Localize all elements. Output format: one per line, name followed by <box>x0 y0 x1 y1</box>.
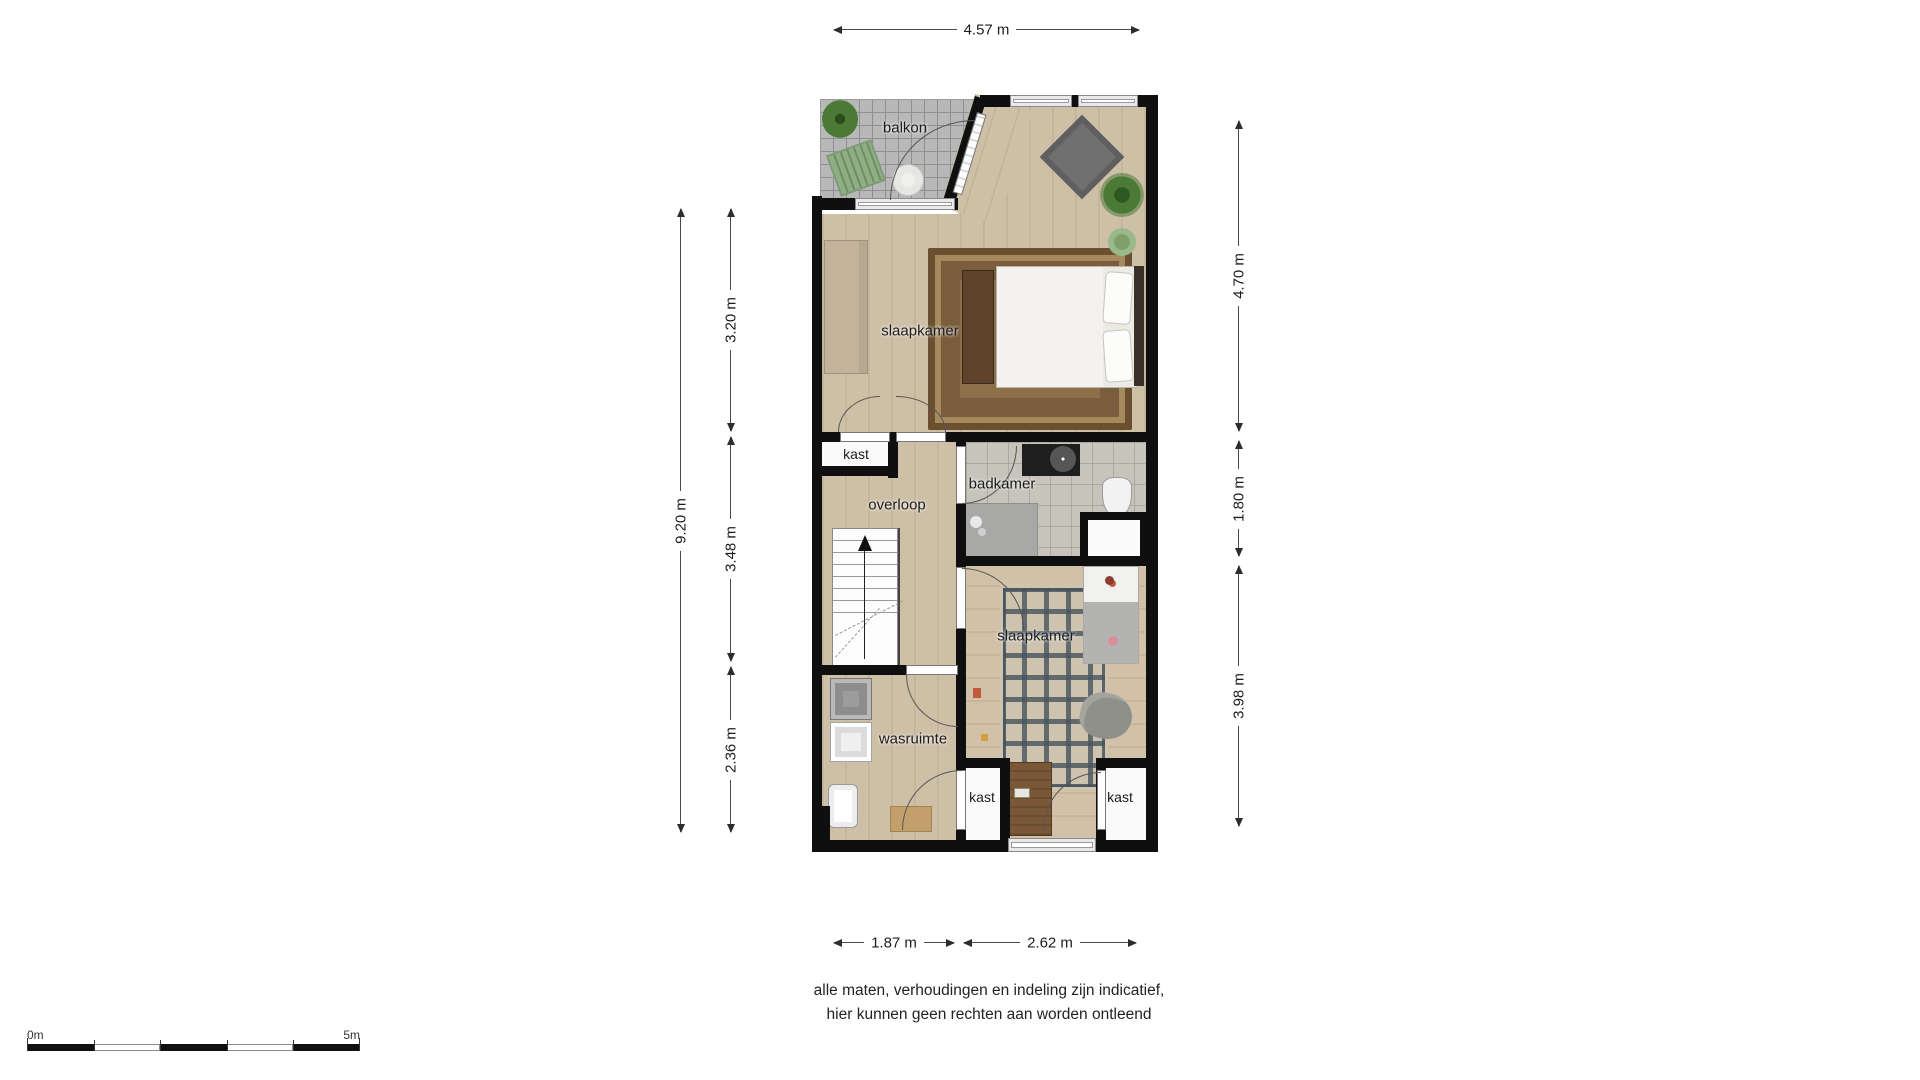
shaft <box>1088 520 1140 558</box>
staircase <box>832 528 898 668</box>
wardrobe <box>824 240 868 374</box>
wasruimte-label: wasruimte <box>879 731 947 748</box>
dimension-top-width: 4.57 m <box>833 22 1140 38</box>
disclaimer-line-1: alle maten, verhoudingen en indeling zij… <box>639 979 1339 1003</box>
window-top-left <box>1010 95 1072 107</box>
laundry-sink-icon <box>828 784 858 828</box>
single-bed-blanket <box>1084 602 1138 663</box>
desk-item-icon <box>1014 788 1030 798</box>
scale-bar: 0m 5m <box>27 1028 360 1056</box>
stair-winder-line <box>835 608 880 658</box>
kast-bottom-left-label: kast <box>969 789 995 805</box>
dimension-bottom-left-label: 1.87 m <box>864 935 924 952</box>
scale-bar-segment <box>227 1044 293 1051</box>
wall-right <box>1146 95 1158 852</box>
scale-bar-tick <box>160 1040 161 1051</box>
slaapkamer-bottom-label: slaapkamer <box>997 628 1075 645</box>
bed-bench <box>962 270 994 384</box>
dimension-left-segment-bottom-label: 2.36 m <box>723 720 740 780</box>
wall-bottom <box>812 840 1158 852</box>
bed-pillow <box>1102 329 1134 383</box>
dimension-left-total-label: 9.20 m <box>673 491 690 551</box>
dimension-right-segment-middle-label: 1.80 m <box>1231 469 1248 529</box>
kast-top-door <box>840 432 890 442</box>
dimension-left-segment-top: 3.20 m <box>723 208 739 432</box>
scale-bar-end-label: 5m <box>343 1028 360 1042</box>
scale-bar-segment <box>94 1044 160 1051</box>
dimension-right-segment-top: 4.70 m <box>1231 120 1247 432</box>
dimension-left-segment-bottom: 2.36 m <box>723 666 739 833</box>
window-top-right <box>1078 95 1138 107</box>
kast-bottom-right-label: kast <box>1107 789 1133 805</box>
dimension-left-segment-top-label: 3.20 m <box>723 290 740 350</box>
wall-left <box>812 196 822 852</box>
dimension-right-segment-bottom: 3.98 m <box>1231 565 1247 827</box>
teddy-icon <box>1105 576 1114 585</box>
dimension-bottom-right: 2.62 m <box>963 935 1137 951</box>
scale-bar-tick <box>27 1038 28 1051</box>
washer-icon <box>830 678 872 720</box>
dimension-left-total: 9.20 m <box>673 208 689 833</box>
kast-top-label: kast <box>843 446 869 462</box>
shower-tray <box>964 503 1038 558</box>
toy-icon <box>981 734 988 741</box>
dimension-right-segment-middle: 1.80 m <box>1231 440 1247 557</box>
badkamer-label: badkamer <box>969 476 1036 493</box>
blanket-toy-icon <box>1108 636 1118 646</box>
bedroom1-door <box>896 432 946 442</box>
window-bottom <box>1008 838 1096 852</box>
dimension-right-segment-top-label: 4.70 m <box>1231 246 1248 306</box>
balkon-label: balkon <box>883 120 927 137</box>
sink-icon <box>1050 446 1076 472</box>
stairs-up-arrowhead-icon <box>858 535 872 551</box>
disclaimer-line-2: hier kunnen geen rechten aan worden ontl… <box>639 1003 1339 1027</box>
slaapkamer-top-label: slaapkamer <box>881 323 959 340</box>
stairs-up-arrow-icon <box>864 547 865 659</box>
toy-icon <box>973 688 981 698</box>
shower-head-icon <box>970 516 982 528</box>
dimension-top-width-label: 4.57 m <box>957 22 1017 39</box>
dimension-right-segment-bottom-label: 3.98 m <box>1231 666 1248 726</box>
balcony-plant-icon <box>822 100 858 138</box>
scale-bar-tick <box>94 1040 95 1051</box>
dimension-left-segment-middle-label: 3.48 m <box>723 519 740 579</box>
plant-icon <box>1100 173 1144 217</box>
disclaimer: alle maten, verhoudingen en indeling zij… <box>639 979 1339 1027</box>
overloop-label: overloop <box>868 497 926 514</box>
scale-bar-segment <box>27 1044 94 1051</box>
floor-plan-page: balkon slaapkamer kast overloop badkamer… <box>0 0 1920 1080</box>
dimension-left-segment-middle: 3.48 m <box>723 436 739 662</box>
scale-bar-tick <box>293 1040 294 1051</box>
scale-bar-tick <box>227 1040 228 1051</box>
small-plant-icon <box>1108 228 1136 256</box>
wall-kast-top-bottom <box>822 466 898 476</box>
dimension-bottom-right-label: 2.62 m <box>1020 935 1080 952</box>
toilet-icon <box>1102 477 1132 517</box>
scale-bar-segment <box>160 1044 227 1051</box>
stair-balustrade <box>898 528 900 668</box>
bed-pillow <box>1102 271 1134 325</box>
wall-badkamer-bottom <box>956 556 1148 566</box>
bed-headboard <box>1134 266 1144 386</box>
wall-kast-bl-right <box>1000 758 1010 842</box>
scale-bar-segment <box>293 1044 360 1051</box>
dryer-icon <box>830 722 872 762</box>
scale-bar-start-label: 0m <box>27 1028 44 1042</box>
dimension-bottom-left: 1.87 m <box>833 935 955 951</box>
scale-bar-tick <box>359 1038 360 1051</box>
wasruimte-door <box>906 665 958 675</box>
